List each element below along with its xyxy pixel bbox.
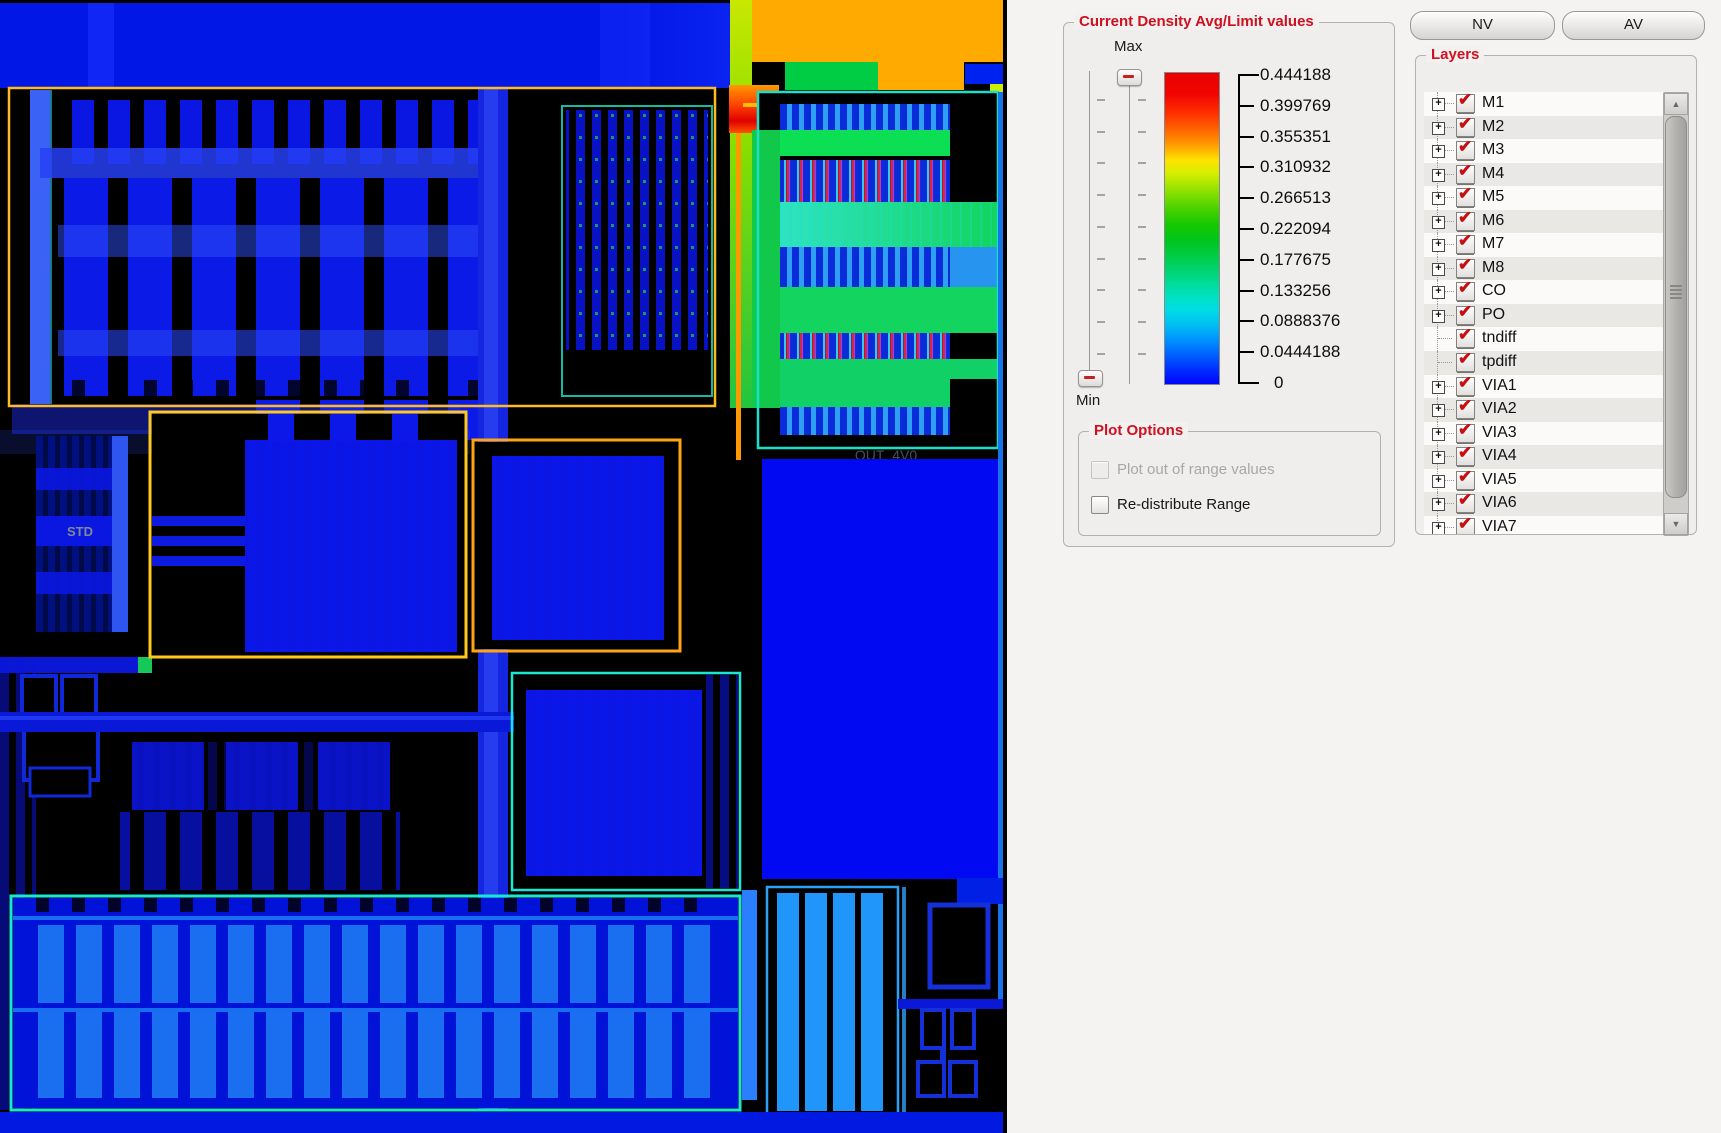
expand-icon[interactable]: + [1432, 98, 1445, 111]
check-icon: ✔ [1458, 420, 1472, 440]
scale-tick [1238, 320, 1254, 322]
av-button[interactable]: AV [1562, 11, 1705, 40]
layer-name: M2 [1482, 118, 1504, 136]
layer-checkbox[interactable]: ✔ [1456, 377, 1475, 396]
layer-name: VIA1 [1482, 377, 1517, 395]
layer-row-VIA3[interactable]: +✔VIA3 [1424, 422, 1663, 446]
layers-groupbox: Layers +✔M1+✔M2+✔M3+✔M4+✔M5+✔M6+✔M7+✔M8+… [1415, 55, 1697, 535]
layer-checkbox[interactable]: ✔ [1456, 118, 1475, 137]
layer-row-VIA5[interactable]: +✔VIA5 [1424, 469, 1663, 493]
layer-row-VIA1[interactable]: +✔VIA1 [1424, 375, 1663, 399]
check-icon: ✔ [1458, 231, 1472, 251]
layer-name: M4 [1482, 165, 1504, 183]
current-density-heatmap: OUT_4V0 [0, 0, 1007, 1133]
slider-tick [1097, 321, 1105, 323]
layer-name: CO [1482, 282, 1506, 300]
check-icon: ✔ [1458, 467, 1472, 487]
slider-tick [1097, 226, 1105, 228]
slider-tick [1097, 131, 1105, 133]
tree-line [1444, 197, 1454, 198]
scale-value: 0.222094 [1260, 219, 1370, 239]
layer-name: M1 [1482, 94, 1504, 112]
slider-tick [1138, 258, 1146, 260]
redistribute-range-label: Re-distribute Range [1117, 496, 1250, 513]
cell-label-std: STD [67, 524, 93, 539]
layer-name: M6 [1482, 212, 1504, 230]
layer-name: PO [1482, 306, 1505, 324]
tree-line [1438, 362, 1452, 363]
max-slider-handle[interactable] [1117, 69, 1142, 86]
layer-row-M1[interactable]: +✔M1 [1424, 92, 1663, 116]
min-label: Min [1076, 392, 1100, 409]
expand-icon[interactable]: + [1432, 428, 1445, 441]
layer-checkbox[interactable]: ✔ [1456, 212, 1475, 231]
scale-tick [1238, 259, 1254, 261]
plot-options-title: Plot Options [1089, 422, 1188, 439]
scale-tick [1238, 166, 1254, 168]
slider-tick [1097, 289, 1105, 291]
scrollbar-thumb[interactable] [1665, 116, 1687, 498]
expand-icon[interactable]: + [1432, 381, 1445, 394]
slider-tick [1097, 353, 1105, 355]
layer-name: VIA2 [1482, 400, 1517, 418]
layer-name: VIA5 [1482, 471, 1517, 489]
scale-tick [1238, 290, 1254, 292]
expand-icon[interactable]: + [1432, 451, 1445, 464]
tree-line [1444, 174, 1454, 175]
scale-tick [1238, 351, 1254, 353]
expand-icon[interactable]: + [1432, 169, 1445, 182]
tree-line [1444, 409, 1454, 410]
check-icon: ✔ [1458, 373, 1472, 393]
layer-checkbox[interactable]: ✔ [1456, 329, 1475, 348]
tree-line [1444, 456, 1454, 457]
scale-value: 0.177675 [1260, 250, 1370, 270]
check-icon: ✔ [1458, 443, 1472, 463]
scale-tick [1238, 382, 1259, 384]
layer-name: M5 [1482, 188, 1504, 206]
layer-checkbox[interactable]: ✔ [1456, 400, 1475, 419]
redistribute-range-checkbox[interactable] [1091, 496, 1109, 514]
tree-line [1444, 103, 1454, 104]
tree-line [1444, 480, 1454, 481]
layer-row-PO[interactable]: +✔PO [1424, 304, 1663, 328]
current-density-groupbox: Current Density Avg/Limit values Max Min… [1063, 22, 1395, 547]
layer-name: VIA7 [1482, 518, 1517, 534]
slider-tick [1138, 289, 1146, 291]
scale-tick [1238, 136, 1254, 138]
tree-line [1444, 221, 1454, 222]
layer-row-CO[interactable]: +✔CO [1424, 280, 1663, 304]
layer-row-M4[interactable]: +✔M4 [1424, 163, 1663, 187]
expand-icon[interactable]: + [1432, 263, 1445, 276]
layer-name: VIA4 [1482, 447, 1517, 465]
layer-checkbox[interactable]: ✔ [1456, 282, 1475, 301]
layer-checkbox[interactable]: ✔ [1456, 306, 1475, 325]
layer-checkbox[interactable]: ✔ [1456, 471, 1475, 490]
plot-options-groupbox: Plot Options Plot out of range values Re… [1078, 431, 1381, 536]
check-icon: ✔ [1458, 490, 1472, 510]
layer-row-M8[interactable]: +✔M8 [1424, 257, 1663, 281]
nv-button[interactable]: NV [1410, 11, 1555, 40]
scale-tick [1238, 74, 1259, 76]
slider-tick [1138, 162, 1146, 164]
tree-line [1444, 527, 1454, 528]
expand-icon[interactable]: + [1432, 286, 1445, 299]
expand-icon[interactable]: + [1432, 192, 1445, 205]
slider-tick [1097, 99, 1105, 101]
check-icon: ✔ [1458, 302, 1472, 322]
layer-name: M3 [1482, 141, 1504, 159]
slider-tick [1097, 162, 1105, 164]
scale-value: 0 [1274, 373, 1384, 393]
app-window: OUT_4V0 [0, 0, 1721, 1133]
scale-value: 0.355351 [1260, 127, 1370, 147]
layer-name: M7 [1482, 235, 1504, 253]
scale-tick [1238, 197, 1254, 199]
expand-icon[interactable]: + [1432, 522, 1445, 534]
layer-name: tpdiff [1482, 353, 1516, 371]
check-icon: ✔ [1458, 92, 1472, 110]
min-slider-handle[interactable] [1078, 370, 1103, 387]
check-icon: ✔ [1458, 137, 1472, 157]
check-icon: ✔ [1458, 396, 1472, 416]
max-label: Max [1114, 38, 1142, 55]
scroll-up-button[interactable]: ▲ [1664, 93, 1688, 115]
tree-line [1444, 268, 1454, 269]
layer-row-M3[interactable]: +✔M3 [1424, 139, 1663, 163]
expand-icon[interactable]: + [1432, 498, 1445, 511]
expand-icon[interactable]: + [1432, 310, 1445, 323]
control-panel: Current Density Avg/Limit values Max Min… [1007, 0, 1721, 1133]
scale-value: 0.133256 [1260, 281, 1370, 301]
layer-checkbox[interactable]: ✔ [1456, 259, 1475, 278]
layer-row-M2[interactable]: +✔M2 [1424, 116, 1663, 140]
expand-icon[interactable]: + [1432, 475, 1445, 488]
layer-name: M8 [1482, 259, 1504, 277]
layers-scrollbar[interactable]: ▲ ▼ [1663, 92, 1689, 536]
layer-checkbox[interactable]: ✔ [1456, 94, 1475, 113]
tree-line [1438, 338, 1452, 339]
tree-line [1444, 386, 1454, 387]
scale-value: 0.399769 [1260, 96, 1370, 116]
layer-checkbox[interactable]: ✔ [1456, 188, 1475, 207]
layer-checkbox[interactable]: ✔ [1456, 141, 1475, 160]
expand-icon[interactable]: + [1432, 404, 1445, 417]
tree-line [1444, 127, 1454, 128]
color-scale-bar [1164, 72, 1220, 385]
layers-tree: +✔M1+✔M2+✔M3+✔M4+✔M5+✔M6+✔M7+✔M8+✔CO+✔PO… [1424, 92, 1663, 534]
check-icon: ✔ [1458, 325, 1472, 345]
layer-row-M7[interactable]: +✔M7 [1424, 233, 1663, 257]
layer-checkbox[interactable]: ✔ [1456, 424, 1475, 443]
layer-checkbox[interactable]: ✔ [1456, 494, 1475, 513]
tree-line [1444, 291, 1454, 292]
check-icon: ✔ [1458, 208, 1472, 228]
layer-row-M5[interactable]: +✔M5 [1424, 186, 1663, 210]
check-icon: ✔ [1458, 161, 1472, 181]
layer-row-tpdiff[interactable]: ✔tpdiff [1424, 351, 1663, 375]
check-icon: ✔ [1458, 278, 1472, 298]
layer-row-tndiff[interactable]: ✔tndiff [1424, 327, 1663, 351]
scale-value: 0.444188 [1260, 65, 1370, 85]
layer-row-VIA7[interactable]: +✔VIA7 [1424, 516, 1663, 534]
check-icon: ✔ [1458, 184, 1472, 204]
expand-icon[interactable]: + [1432, 122, 1445, 135]
expand-icon[interactable]: + [1432, 216, 1445, 229]
scale-value: 0.310932 [1260, 157, 1370, 177]
scale-tick [1238, 105, 1254, 107]
layer-checkbox[interactable]: ✔ [1456, 447, 1475, 466]
current-density-title: Current Density Avg/Limit values [1074, 13, 1319, 30]
expand-icon[interactable]: + [1432, 239, 1445, 252]
tree-line [1444, 433, 1454, 434]
slider-tick [1138, 131, 1146, 133]
slider-tick [1138, 226, 1146, 228]
layout-canvas[interactable]: OUT_4V0 [0, 0, 1007, 1133]
check-icon: ✔ [1458, 114, 1472, 134]
layer-checkbox[interactable]: ✔ [1456, 518, 1475, 534]
scale-tick [1238, 228, 1254, 230]
layer-checkbox[interactable]: ✔ [1456, 235, 1475, 254]
scroll-down-button[interactable]: ▼ [1664, 513, 1688, 535]
layer-checkbox[interactable]: ✔ [1456, 353, 1475, 372]
plot-out-of-range-checkbox [1091, 461, 1109, 479]
slider-tick [1138, 353, 1146, 355]
scale-value: 0.0444188 [1260, 342, 1370, 362]
layer-row-VIA2[interactable]: +✔VIA2 [1424, 398, 1663, 422]
layer-row-VIA4[interactable]: +✔VIA4 [1424, 445, 1663, 469]
slider-tick [1097, 258, 1105, 260]
check-icon: ✔ [1458, 514, 1472, 534]
tree-line [1444, 315, 1454, 316]
layer-row-VIA6[interactable]: +✔VIA6 [1424, 492, 1663, 516]
layers-title: Layers [1426, 46, 1484, 63]
expand-icon[interactable]: + [1432, 145, 1445, 158]
layer-checkbox[interactable]: ✔ [1456, 165, 1475, 184]
check-icon: ✔ [1458, 255, 1472, 275]
scale-value: 0.0888376 [1260, 311, 1370, 331]
tree-line [1444, 503, 1454, 504]
layer-row-M6[interactable]: +✔M6 [1424, 210, 1663, 234]
layer-name: VIA3 [1482, 424, 1517, 442]
layer-name: tndiff [1482, 329, 1516, 347]
slider-tick [1138, 194, 1146, 196]
check-icon: ✔ [1458, 349, 1472, 369]
tree-line [1444, 150, 1454, 151]
layer-name: VIA6 [1482, 494, 1517, 512]
slider-tick [1138, 321, 1146, 323]
scale-value: 0.266513 [1260, 188, 1370, 208]
tree-line [1444, 244, 1454, 245]
slider-tick [1097, 194, 1105, 196]
slider-tick [1138, 99, 1146, 101]
min-slider-track [1089, 71, 1090, 384]
max-slider-track [1129, 71, 1130, 384]
plot-out-of-range-label: Plot out of range values [1117, 461, 1275, 478]
